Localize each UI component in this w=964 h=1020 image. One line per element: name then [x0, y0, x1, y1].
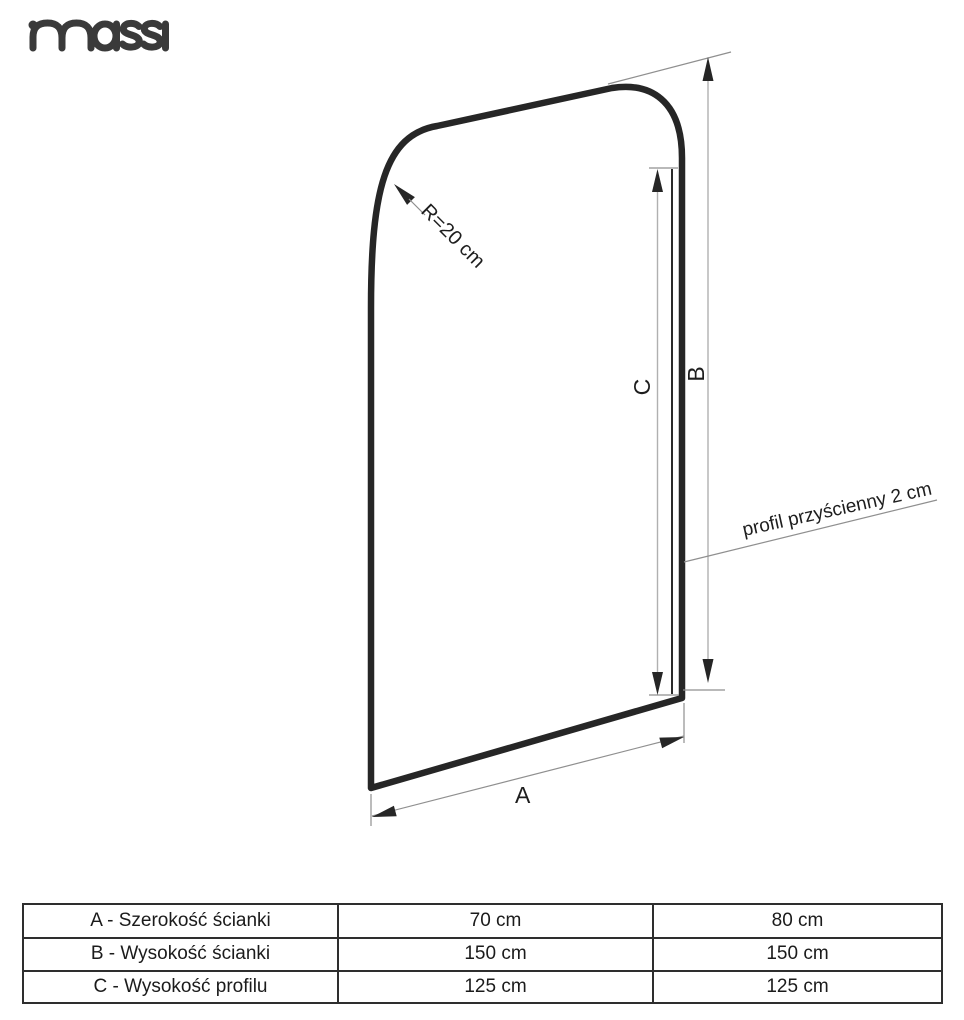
spec-row-label: C - Wysokość profilu	[24, 970, 337, 1002]
spec-value-80: 150 cm	[652, 937, 941, 969]
arrowhead-c-bottom	[652, 672, 663, 695]
dimension-drawing: C B A R=20 cm profil przyścienny 2 cm	[0, 0, 964, 900]
dimension-label-c: C	[629, 379, 655, 396]
arrowhead-a-right	[659, 737, 684, 748]
spec-value-80: 80 cm	[652, 905, 941, 937]
spec-value-70: 70 cm	[337, 905, 652, 937]
dimension-label-a: A	[515, 782, 531, 808]
arrowhead-a-left	[372, 806, 397, 817]
spec-row-label: A - Szerokość ścianki	[24, 905, 337, 937]
arrowhead-c-top	[652, 169, 663, 192]
spec-value-70: 150 cm	[337, 937, 652, 969]
spec-value-80: 125 cm	[652, 970, 941, 1002]
page: C B A R=20 cm profil przyścienny 2 cm A …	[0, 0, 964, 1020]
spec-table: A - Szerokość ścianki 70 cm 80 cm B - Wy…	[22, 903, 943, 1004]
spec-value-70: 125 cm	[337, 970, 652, 1002]
arrowhead-b-top	[703, 57, 714, 81]
arrowhead-b-bottom	[703, 659, 714, 683]
dimension-label-b: B	[683, 366, 709, 381]
radius-label: R=20 cm	[416, 200, 489, 273]
panel-outline	[371, 87, 682, 788]
wall-profile-label: profil przyścienny 2 cm	[741, 479, 934, 541]
spec-row-label: B - Wysokość ścianki	[24, 937, 337, 969]
